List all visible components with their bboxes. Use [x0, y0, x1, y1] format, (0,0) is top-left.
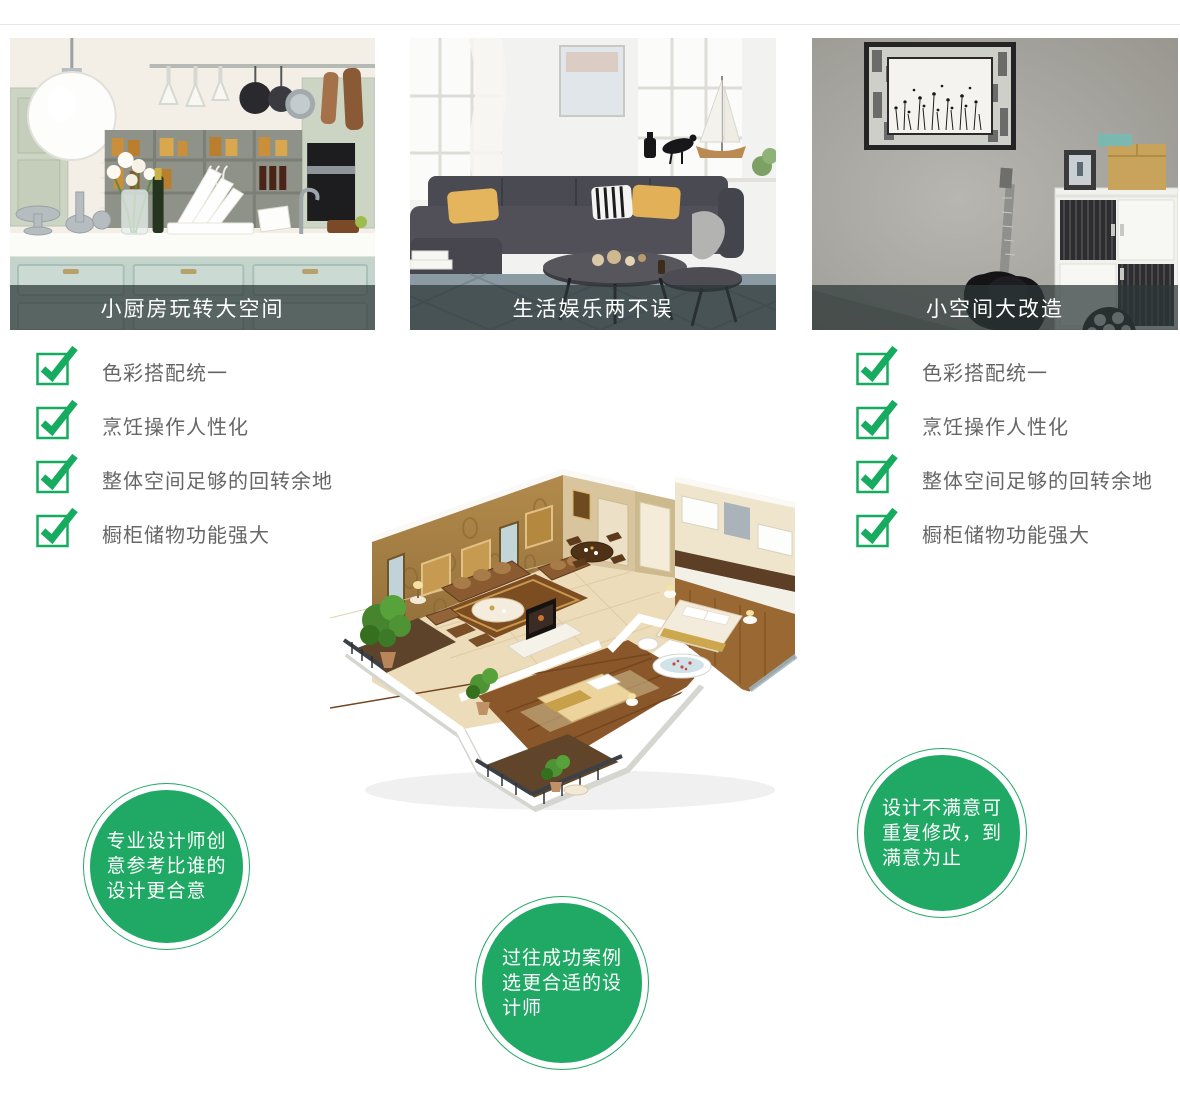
check-icon [36, 344, 80, 386]
section-divider [0, 24, 1180, 25]
check-icon [856, 398, 900, 440]
bubble-text: 过往成功案例 选更合适的设 计师 [502, 946, 622, 1021]
checklist-item: 烹饪操作人性化 [36, 398, 249, 440]
checklist-item: 色彩搭配统一 [856, 344, 1048, 386]
floorplan-3d-image [330, 468, 800, 820]
checklist-item: 整体空间足够的回转余地 [856, 452, 1153, 494]
checklist-item: 烹饪操作人性化 [856, 398, 1069, 440]
check-icon [36, 398, 80, 440]
photo-card-small-space: 小空间大改造 [812, 38, 1178, 330]
checklist-item-label: 色彩搭配统一 [922, 357, 1048, 386]
checklist-item-label: 色彩搭配统一 [102, 357, 228, 386]
checklist-item: 整体空间足够的回转余地 [36, 452, 333, 494]
checklist-item-label: 整体空间足够的回转余地 [922, 465, 1153, 494]
photo-caption-bar: 小空间大改造 [812, 285, 1178, 330]
check-icon [856, 506, 900, 548]
checklist-item: 色彩搭配统一 [36, 344, 228, 386]
check-icon [856, 344, 900, 386]
photo-card-kitchen: 小厨房玩转大空间 [10, 38, 375, 330]
bubble-text: 专业设计师创 意参考比谁的 设计更合意 [106, 829, 226, 904]
benefit-bubble-revisions: 设计不满意可 重复修改，到 满意为止 [858, 749, 1026, 917]
photo-caption: 小厨房玩转大空间 [101, 293, 285, 323]
benefit-bubble-designers: 专业设计师创 意参考比谁的 设计更合意 [84, 784, 249, 949]
photo-caption-bar: 小厨房玩转大空间 [10, 285, 375, 330]
checklist-item-label: 烹饪操作人性化 [922, 411, 1069, 440]
check-icon [856, 452, 900, 494]
checklist-item: 橱柜储物功能强大 [856, 506, 1090, 548]
photo-card-living-room: 生活娱乐两不误 [410, 38, 776, 330]
check-icon [36, 452, 80, 494]
bubble-text: 设计不满意可 重复修改，到 满意为止 [882, 796, 1002, 871]
photo-caption: 生活娱乐两不误 [513, 293, 674, 323]
check-icon [36, 506, 80, 548]
benefit-bubble-cases: 过往成功案例 选更合适的设 计师 [476, 897, 648, 1069]
photo-caption-bar: 生活娱乐两不误 [410, 285, 776, 330]
checklist-item-label: 橱柜储物功能强大 [102, 519, 270, 548]
checklist-item: 橱柜储物功能强大 [36, 506, 270, 548]
checklist-item-label: 烹饪操作人性化 [102, 411, 249, 440]
checklist-item-label: 橱柜储物功能强大 [922, 519, 1090, 548]
photo-caption: 小空间大改造 [926, 293, 1064, 323]
promo-section: 小厨房玩转大空间 [0, 0, 1180, 1095]
checklist-item-label: 整体空间足够的回转余地 [102, 465, 333, 494]
